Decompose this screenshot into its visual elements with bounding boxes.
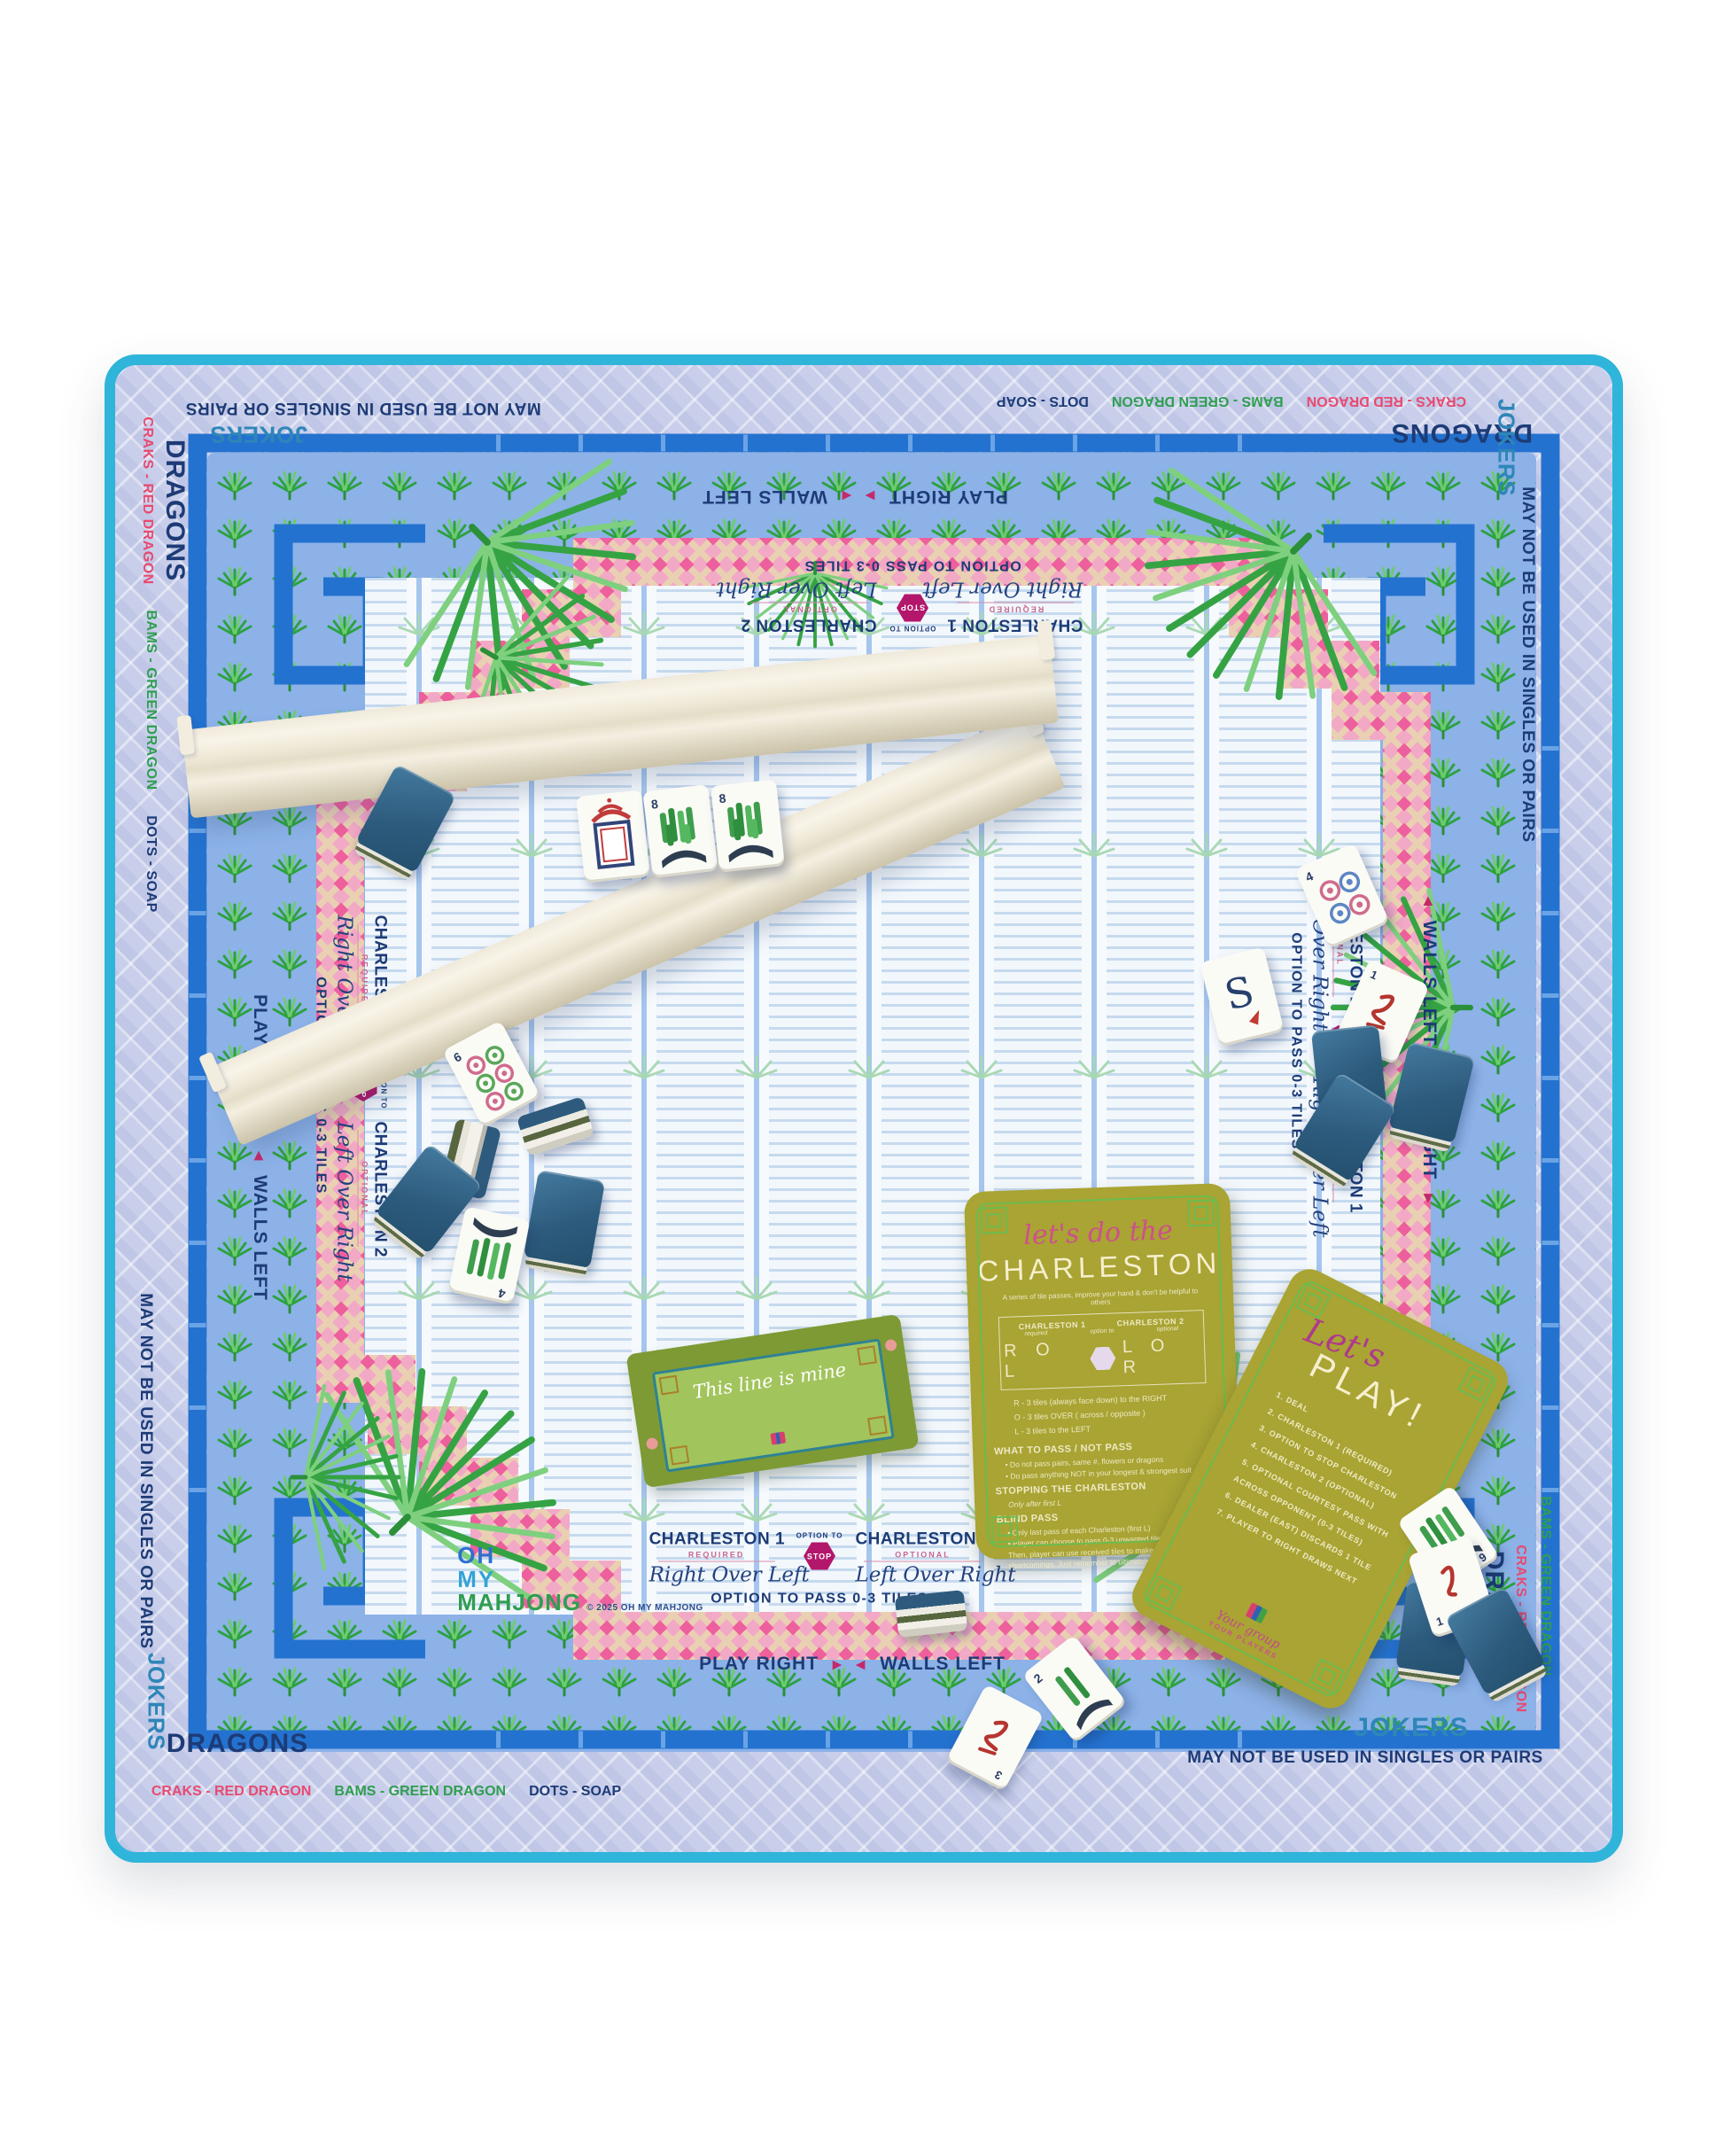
line-card-panel: This line is mine: [652, 1338, 895, 1472]
charleston-guide-top: CHARLESTON 1 REQUIRED Right Over Left OP…: [749, 557, 1076, 634]
left-arrow-icon: ◂: [1419, 897, 1440, 907]
left-arrow-icon: ◂: [857, 1654, 866, 1675]
card-subtitle: A series of tile passes, improve your ha…: [994, 1287, 1207, 1310]
border-label-dots: DOTS - SOAP: [529, 1784, 621, 1800]
charleston2-script: Left Over Right: [855, 1564, 990, 1587]
border-rule-right: MAY NOT BE USED IN SINGLES OR PAIRS: [1518, 486, 1537, 842]
direction-band-bottom: PLAY RIGHT ▸ ◂ WALLS LEFT: [699, 1654, 1006, 1675]
right-arrow-icon: ▸: [1419, 1194, 1440, 1203]
border-label-bams: BAMS - GREEN DRAGON: [334, 1784, 506, 1800]
charleston2-title: CHARLESTON 2: [855, 1530, 990, 1550]
border-label-jokers-br: JOKERS: [1354, 1713, 1468, 1743]
tile-number: 8: [718, 790, 727, 806]
oh-my-mahjong-logo: OH MY MAHJONG© 2025 OH MY MAHJONG: [457, 1544, 703, 1615]
border-label-craks: CRAKS - RED DRAGON: [151, 1784, 311, 1800]
knot-ornament-icon: [659, 1375, 680, 1396]
charleston2-title: CHARLESTON 2: [370, 1121, 390, 1256]
charleston1-script: Right Over Left: [948, 578, 1083, 601]
fret-corner-icon: [980, 1207, 1007, 1234]
charleston2-title: CHARLESTON 2: [742, 615, 877, 634]
stop-hexagon-icon: STOP: [897, 595, 928, 622]
stop-label: STOP: [900, 603, 925, 612]
stop-hexagon-icon: STOP: [804, 1543, 835, 1570]
letters-lor: L O R: [1122, 1335, 1201, 1378]
charleston1-subtitle: REQUIRED: [957, 603, 1074, 614]
charleston2-subtitle: OPTIONAL: [751, 603, 868, 614]
brand-mark-icon: [770, 1431, 786, 1444]
option-to-label: OPTION TO: [796, 1532, 843, 1540]
charleston2-subtitle: OPTIONAL: [864, 1551, 981, 1562]
pass-diagram: CHARLESTON 1 CHARLESTON 2 required optio…: [998, 1310, 1207, 1390]
stop-hexagon-icon: [1090, 1346, 1116, 1370]
border-suit-row-bl: CRAKS - RED DRAGON BAMS - GREEN DRAGON D…: [151, 1784, 621, 1800]
pink-dot-ornament: [646, 1437, 659, 1451]
right-arrow-icon: ▸: [865, 486, 874, 507]
option-to-label: OPTION TO: [889, 625, 936, 633]
border-label-dragons-left: DRAGONS: [159, 440, 190, 581]
right-arrow-icon: ▸: [833, 1654, 843, 1675]
charleston2-subtitle: OPTIONAL: [358, 1130, 369, 1247]
line-card-script: This line is mine: [656, 1354, 882, 1408]
tile-8-bam: 8: [642, 784, 718, 878]
charleston2-script: Left Over Right: [742, 578, 877, 601]
stop-label: STOP: [807, 1552, 832, 1561]
border-label-dots-left: DOTS - SOAP: [143, 815, 159, 913]
walls-left-label: WALLS LEFT: [249, 1175, 270, 1301]
left-arrow-icon: ◂: [250, 1152, 270, 1162]
tile-number: 6: [451, 1049, 464, 1065]
tile-8-bam: 8: [711, 779, 785, 872]
card-title: CHARLESTON: [966, 1246, 1232, 1288]
tile-number: 2: [1031, 1670, 1045, 1686]
border-rule-left: MAY NOT BE USED IN SINGLES OR PAIRS: [136, 1293, 155, 1648]
border-label-bams-right: BAMS - GREEN DRAGON: [1537, 1496, 1553, 1676]
logo-line-my: MY: [457, 1568, 703, 1592]
border-rule-br: MAY NOT BE USED IN SINGLES OR PAIRS: [1187, 1748, 1542, 1768]
brand-mark-icon: [1246, 1602, 1269, 1623]
logo-copyright: © 2025 OH MY MAHJONG: [586, 1603, 703, 1613]
wind-letter: S: [1220, 967, 1259, 1020]
border-label-craks: CRAKS - RED DRAGON: [1307, 393, 1466, 409]
border-label-bams: BAMS - GREEN DRAGON: [1112, 393, 1284, 409]
diagram-col2-sub: optional: [1157, 1326, 1179, 1333]
knot-ornament-icon: [670, 1445, 690, 1466]
pink-dot-ornament: [884, 1339, 897, 1352]
logo-line-mahjong: MAHJONG: [457, 1589, 581, 1615]
knot-ornament-icon: [857, 1345, 877, 1366]
tile-number: 8: [650, 797, 659, 812]
border-rule-tl: MAY NOT BE USED IN SINGLES OR PAIRS: [185, 398, 540, 417]
tile-side-view: [895, 1590, 967, 1638]
border-label-jokers-left: JOKERS: [143, 1653, 170, 1750]
tile-number: 3: [992, 1768, 1004, 1783]
tile-pagoda-flower: [576, 790, 650, 883]
fret-corner-icon: [1187, 1200, 1215, 1227]
fret-corner-icon: [991, 1515, 1019, 1543]
tile-number: 4: [1303, 868, 1316, 884]
charleston1-title: CHARLESTON 1: [948, 615, 1083, 634]
tile-number: 1: [1434, 1615, 1445, 1630]
walls-left-label: WALLS LEFT: [702, 486, 827, 507]
left-arrow-icon: ◂: [842, 486, 851, 507]
direction-band-top: PLAY RIGHT ▸ ◂ WALLS LEFT: [702, 486, 1008, 507]
knot-ornament-icon: [867, 1415, 888, 1436]
border-label-craks-left: CRAKS - RED DRAGON: [139, 416, 155, 584]
product-photo: DRAGONS CRAKS - RED DRAGON BAMS - GREEN …: [0, 0, 1724, 2156]
border-label-jokers-tl: JOKERS: [210, 421, 307, 448]
border-label-bams-left: BAMS - GREEN DRAGON: [143, 610, 159, 790]
diagram-option-to: option to: [1090, 1328, 1114, 1335]
diagram-col1-sub: required: [1025, 1330, 1048, 1337]
tile-number: 4: [497, 1286, 507, 1301]
play-right-label: PLAY RIGHT: [699, 1654, 819, 1675]
pass-note: OPTION TO PASS 0-3 TILES: [749, 557, 1076, 573]
direction-band-left: PLAY RIGHT ▸ ◂ WALLS LEFT: [249, 994, 270, 1301]
logo-line-oh: OH: [457, 1544, 703, 1568]
border-suit-row-top: CRAKS - RED DRAGON BAMS - GREEN DRAGON D…: [997, 393, 1466, 409]
border-label-jokers-right: JOKERS: [1493, 399, 1520, 496]
border-label-dots: DOTS - SOAP: [997, 393, 1089, 409]
tile-number: 1: [1368, 968, 1379, 983]
charleston2-script: Left Over Right: [333, 1121, 356, 1256]
play-right-label: PLAY RIGHT: [889, 486, 1008, 507]
border-label-dragons-bl: DRAGONS: [167, 1729, 308, 1759]
letters-rol: R O L: [1004, 1339, 1083, 1382]
walls-left-label: WALLS LEFT: [880, 1654, 1006, 1675]
